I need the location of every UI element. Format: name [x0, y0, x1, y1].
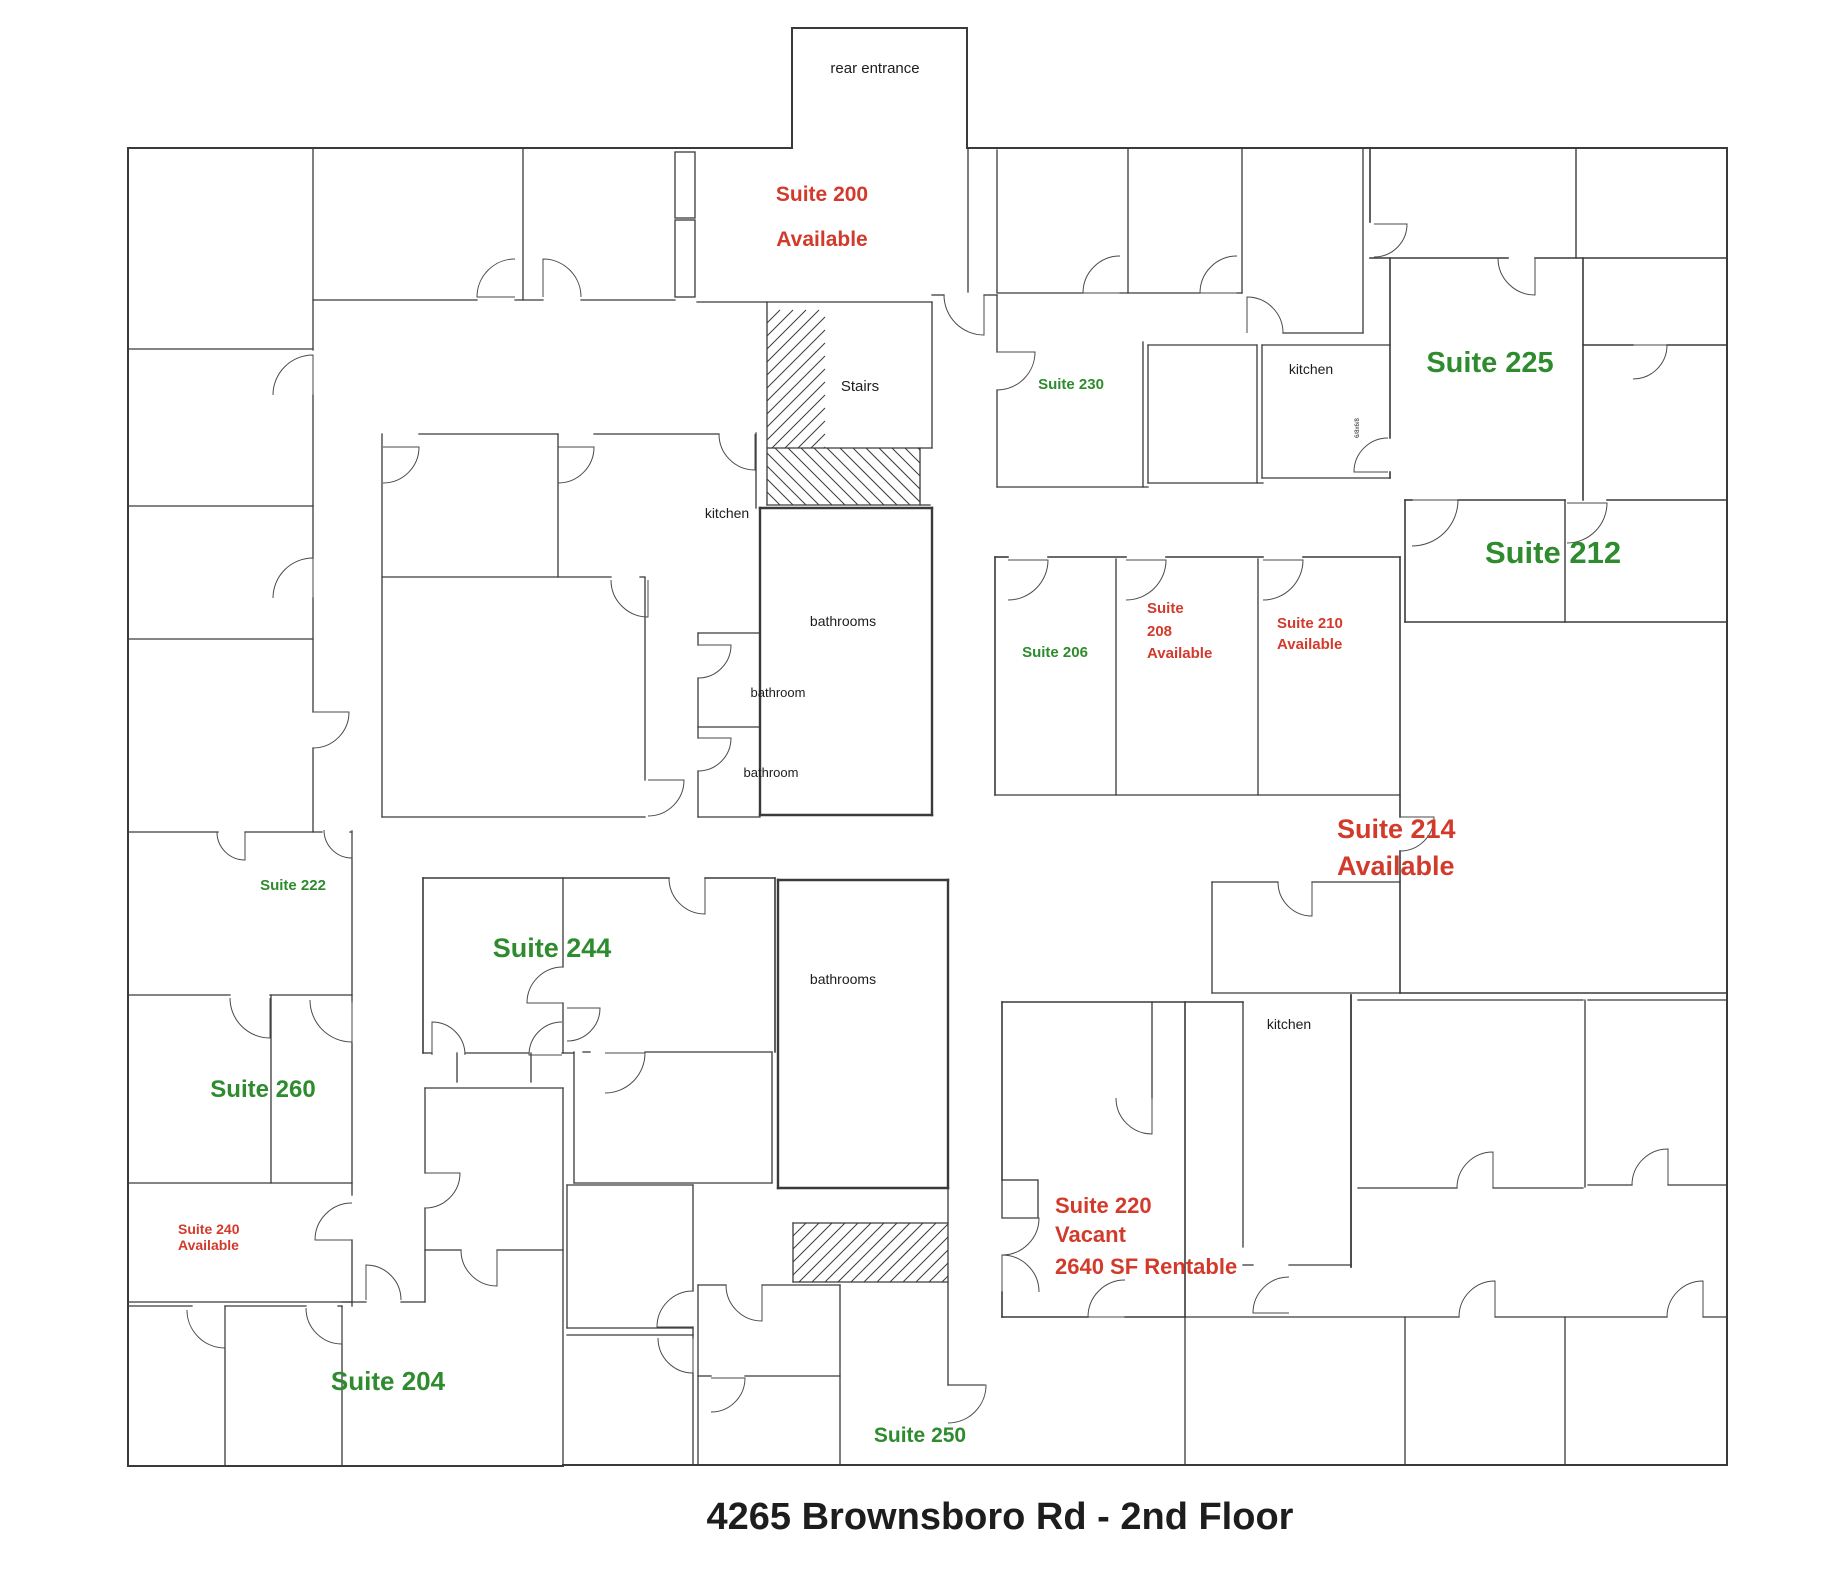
walls — [128, 28, 1727, 1466]
door-swing — [1008, 560, 1048, 600]
label-door-size-note: 6/8x6/8 — [1355, 417, 1361, 437]
door-swing — [657, 1291, 693, 1327]
label-suite-206-text: Suite 206 — [1022, 644, 1088, 661]
label-kitchen-center-text: kitchen — [705, 505, 749, 521]
label-suite-200: Suite 200Available — [776, 183, 868, 251]
door-swing — [1116, 1098, 1152, 1134]
label-kitchen-center: kitchen — [705, 505, 749, 521]
label-suite-214: Suite 214Available — [1337, 814, 1456, 881]
label-suite-214-text: Available — [1337, 851, 1455, 881]
label-suite-208: Suite208Available — [1147, 600, 1212, 662]
label-suite-250-text: Suite 250 — [874, 1424, 966, 1447]
door-swing — [1459, 1281, 1495, 1317]
hatch-area — [793, 1223, 948, 1282]
label-suite-210-text: Suite 210 — [1277, 615, 1343, 632]
label-suite-210: Suite 210Available — [1277, 615, 1343, 653]
door-swing — [432, 1022, 465, 1055]
door-swing — [1126, 560, 1166, 600]
label-rear-entrance-text: rear entrance — [830, 60, 919, 77]
label-bathroom-2: bathroom — [744, 765, 799, 780]
door-swing — [719, 434, 755, 470]
label-suite-208-text: 208 — [1147, 623, 1172, 640]
wall-box — [1002, 1180, 1038, 1218]
label-suite-220-text: 2640 SF Rentable — [1055, 1254, 1237, 1279]
door-swing — [324, 830, 352, 858]
label-suite-220-text: Vacant — [1055, 1222, 1127, 1247]
label-stairs: Stairs — [841, 378, 879, 395]
label-suite-214-text: Suite 214 — [1337, 814, 1456, 844]
floor-plan-page: 4265 Brownsboro Rd - 2nd Floor rear entr… — [0, 0, 1848, 1586]
door-swing — [477, 259, 515, 297]
door-swing — [306, 1308, 342, 1344]
door-swing — [366, 1265, 401, 1300]
door-swing — [1253, 1277, 1289, 1313]
door-swings — [187, 224, 1703, 1423]
label-suite-222-text: Suite 222 — [260, 877, 326, 894]
door-swing — [313, 712, 349, 748]
door-swing — [1457, 1152, 1493, 1188]
label-rear-entrance: rear entrance — [830, 60, 919, 77]
hatch-area — [767, 310, 825, 448]
label-suite-240: Suite 240Available — [178, 1221, 240, 1253]
label-bathroom-1: bathroom — [751, 685, 806, 700]
label-bathroom-2-text: bathroom — [744, 765, 799, 780]
door-swing — [698, 645, 731, 678]
label-suite-244: Suite 244 — [493, 933, 612, 963]
door-swing — [1354, 438, 1388, 472]
label-kitchen-top-right-text: kitchen — [1289, 361, 1333, 377]
hatch-area — [767, 448, 920, 505]
label-suite-244-text: Suite 244 — [493, 933, 612, 963]
door-swing — [527, 967, 563, 1003]
label-suite-260: Suite 260 — [210, 1076, 315, 1103]
wall-box — [675, 152, 695, 218]
door-swing — [1374, 224, 1407, 257]
floor-plan-svg: rear entranceSuite 200AvailableStairsSui… — [0, 0, 1848, 1586]
door-swing — [605, 1053, 645, 1093]
label-suite-240-text: Available — [178, 1237, 239, 1253]
label-kitchen-bottom-right: kitchen — [1267, 1016, 1311, 1032]
label-suite-240-text: Suite 240 — [178, 1221, 240, 1237]
label-suite-204: Suite 204 — [331, 1366, 446, 1396]
label-kitchen-bottom-right-text: kitchen — [1267, 1016, 1311, 1032]
label-suite-220: Suite 220Vacant2640 SF Rentable — [1055, 1193, 1237, 1279]
label-suite-225-text: Suite 225 — [1426, 347, 1553, 379]
door-swing — [1278, 882, 1312, 916]
door-swing — [698, 738, 731, 771]
door-swing — [558, 447, 594, 483]
door-swing — [1247, 297, 1283, 333]
door-swing — [1632, 1149, 1668, 1185]
label-plan-title: 4265 Brownsboro Rd - 2nd Floor — [707, 1496, 1294, 1538]
label-suite-204-text: Suite 204 — [331, 1366, 446, 1396]
label-suite-220-text: Suite 220 — [1055, 1193, 1152, 1218]
door-swing — [1263, 560, 1303, 600]
label-suite-225: Suite 225 — [1426, 347, 1553, 379]
door-swing — [1633, 345, 1667, 379]
label-bathroom-1-text: bathroom — [751, 685, 806, 700]
door-swing — [726, 1285, 762, 1321]
label-bathrooms-upper-text: bathrooms — [810, 613, 876, 629]
door-swing — [461, 1250, 497, 1286]
door-swing — [310, 1000, 352, 1042]
door-swing — [273, 355, 313, 395]
door-swing — [383, 447, 419, 483]
label-kitchen-top-right: kitchen — [1289, 361, 1333, 377]
door-swing — [944, 295, 984, 335]
door-swing — [1083, 256, 1120, 293]
label-suite-230-text: Suite 230 — [1038, 376, 1104, 393]
door-swing — [529, 1022, 562, 1055]
door-swing — [425, 1173, 460, 1208]
label-stairs-text: Stairs — [841, 378, 879, 395]
door-swing — [1002, 1255, 1039, 1292]
label-suite-250: Suite 250 — [874, 1424, 966, 1447]
door-swing — [230, 998, 270, 1038]
door-swing — [1088, 1280, 1125, 1317]
label-bathrooms-lower-text: bathrooms — [810, 971, 876, 987]
label-bathrooms-lower: bathrooms — [810, 971, 876, 987]
door-swing — [1200, 256, 1237, 293]
label-suite-206: Suite 206 — [1022, 644, 1088, 661]
door-swing — [217, 832, 245, 860]
door-swing — [1412, 500, 1458, 546]
label-suite-222: Suite 222 — [260, 877, 326, 894]
label-suite-210-text: Available — [1277, 636, 1342, 653]
door-swing — [711, 1378, 745, 1412]
label-suite-208-text: Suite — [1147, 600, 1184, 617]
door-swing — [658, 1338, 693, 1373]
door-swing — [187, 1310, 225, 1348]
label-suite-260-text: Suite 260 — [210, 1076, 315, 1103]
label-plan-title-text: 4265 Brownsboro Rd - 2nd Floor — [707, 1496, 1294, 1538]
label-suite-200-text: Suite 200 — [776, 183, 868, 206]
door-swing — [567, 1008, 600, 1041]
door-swing — [648, 780, 684, 816]
door-swing — [997, 352, 1035, 390]
label-suite-230: Suite 230 — [1038, 376, 1104, 393]
label-suite-208-text: Available — [1147, 645, 1212, 662]
door-swing — [1498, 258, 1535, 295]
room-labels: rear entranceSuite 200AvailableStairsSui… — [178, 60, 1621, 1538]
label-door-size-note-text: 6/8x6/8 — [1355, 417, 1361, 437]
label-bathrooms-upper: bathrooms — [810, 613, 876, 629]
door-swing — [273, 558, 313, 598]
door-swing — [669, 878, 705, 914]
door-swing — [1002, 1218, 1039, 1255]
stair-hatching — [767, 310, 948, 1282]
door-swing — [315, 1203, 352, 1240]
door-swing — [1667, 1281, 1703, 1317]
label-suite-200-text: Available — [776, 228, 867, 251]
door-swing — [948, 1385, 986, 1423]
label-suite-212-text: Suite 212 — [1485, 535, 1621, 570]
door-swing — [543, 259, 581, 297]
wall-box — [675, 220, 695, 297]
label-suite-212: Suite 212 — [1485, 535, 1621, 570]
door-swing — [611, 580, 648, 617]
